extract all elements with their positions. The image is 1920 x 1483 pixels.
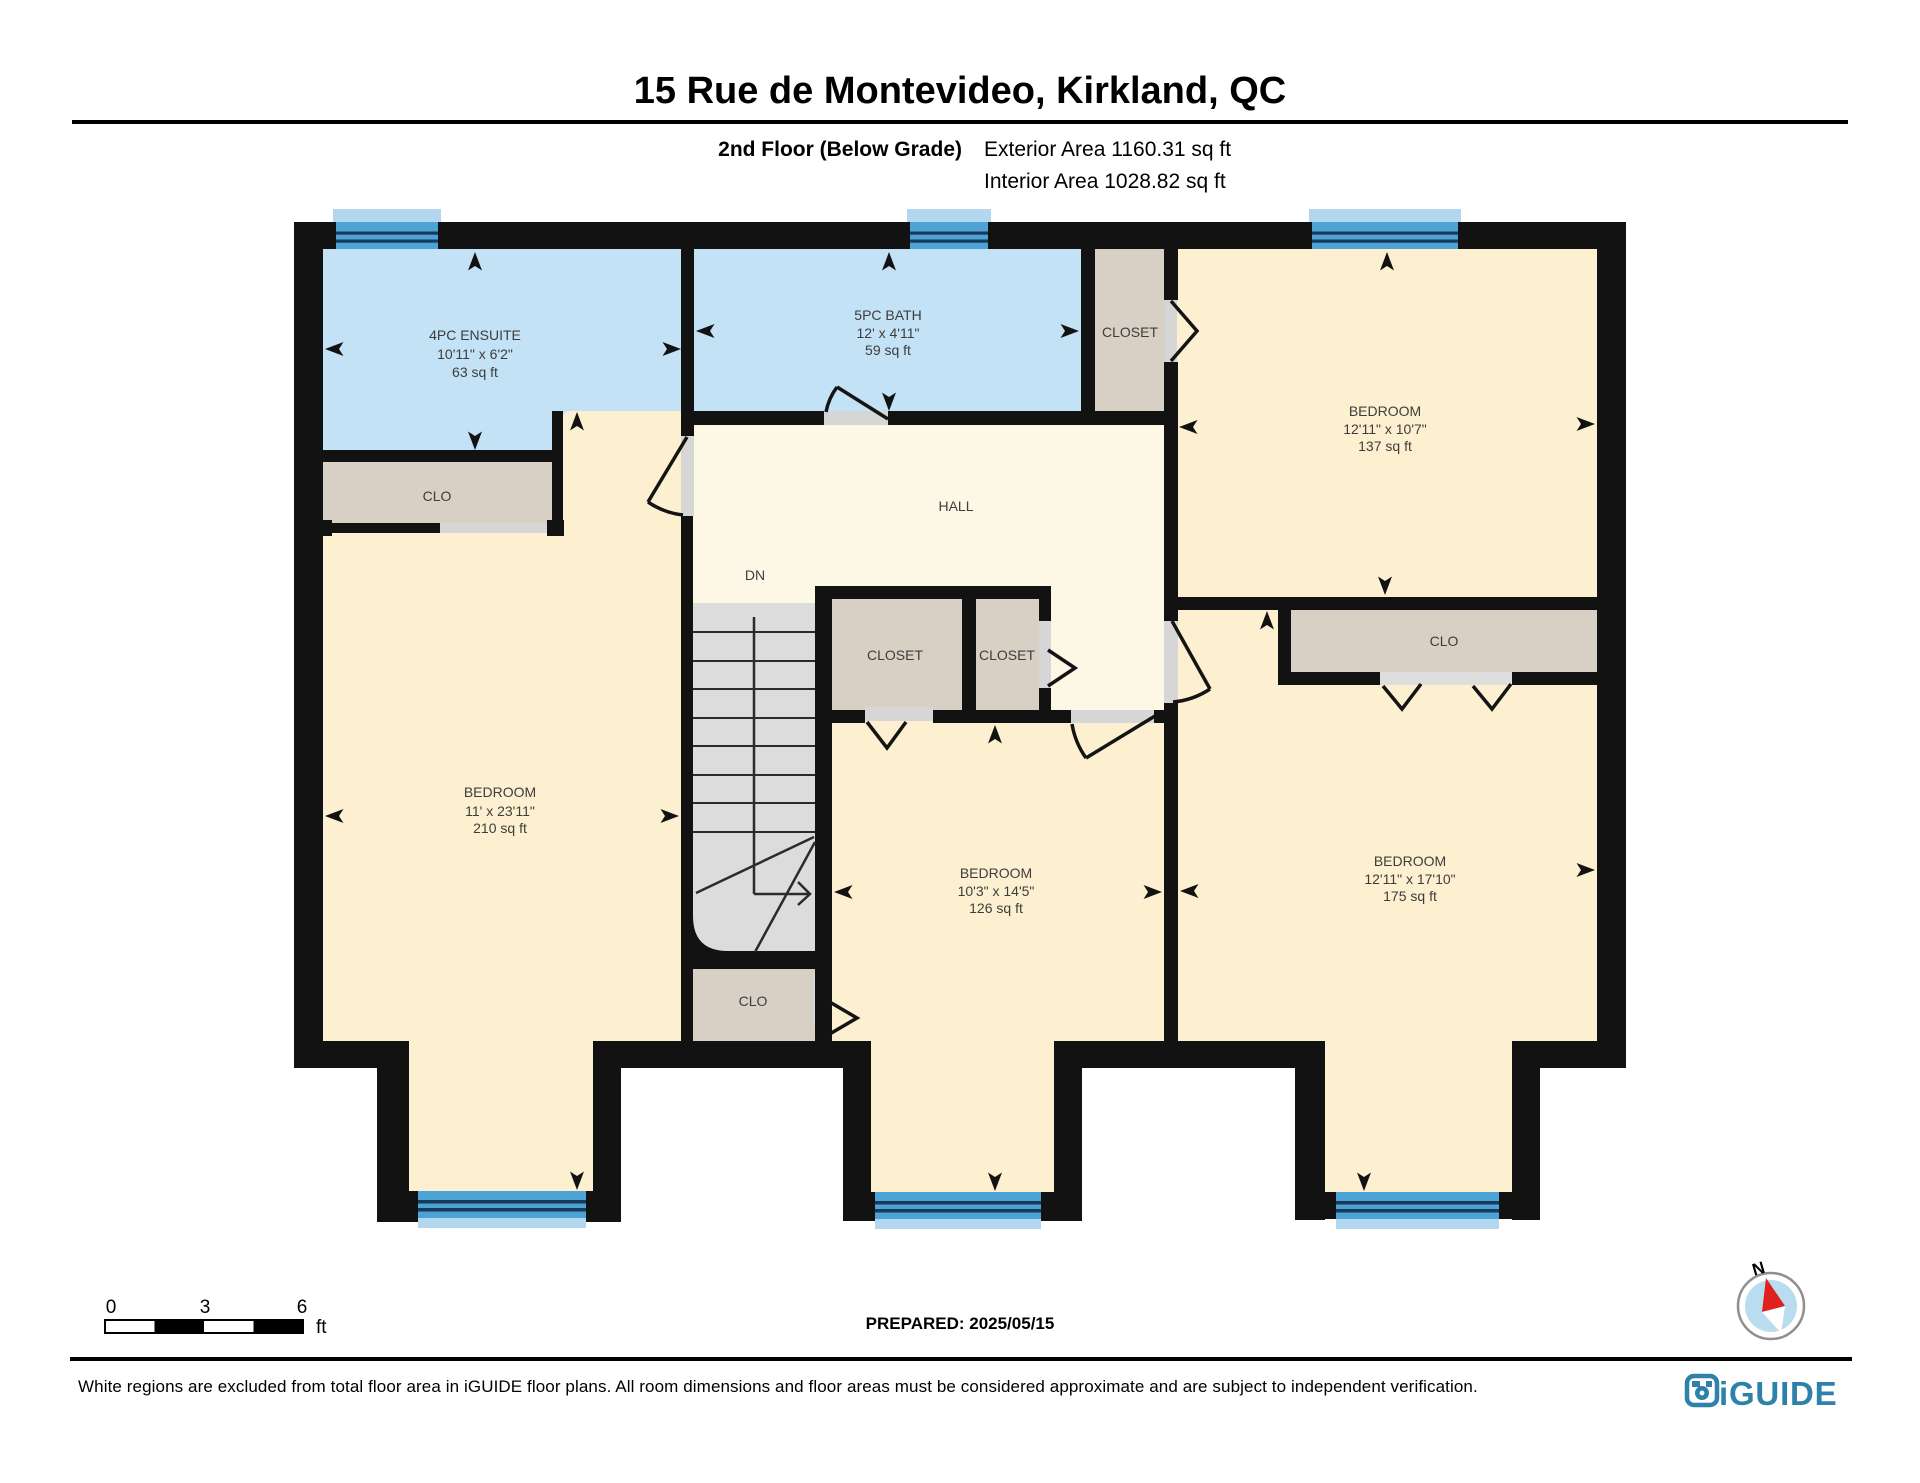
svg-text:BEDROOM: BEDROOM [1349,403,1421,419]
svg-text:BEDROOM: BEDROOM [960,865,1032,881]
svg-text:15 Rue de Montevideo, Kirkland: 15 Rue de Montevideo, Kirkland, QC [634,70,1286,112]
svg-text:ft: ft [316,1317,327,1338]
svg-text:CLOSET: CLOSET [867,647,923,663]
svg-text:PREPARED: 2025/05/15: PREPARED: 2025/05/15 [866,1314,1055,1333]
svg-text:BEDROOM: BEDROOM [1374,853,1446,869]
svg-text:CLOSET: CLOSET [1102,324,1158,340]
svg-text:4PC ENSUITE: 4PC ENSUITE [429,327,521,343]
svg-text:126 sq ft: 126 sq ft [969,900,1023,916]
svg-text:12' x 4'11": 12' x 4'11" [857,325,920,341]
svg-text:BEDROOM: BEDROOM [464,784,536,800]
svg-text:10'3" x 14'5": 10'3" x 14'5" [958,883,1035,899]
svg-text:CLO: CLO [1430,633,1459,649]
svg-text:Exterior Area 1160.31 sq ft: Exterior Area 1160.31 sq ft [984,138,1231,161]
svg-text:12'11" x 17'10": 12'11" x 17'10" [1364,871,1455,887]
svg-text:11' x 23'11": 11' x 23'11" [465,803,535,819]
svg-text:HALL: HALL [938,498,973,514]
svg-text:5PC BATH: 5PC BATH [854,307,921,323]
svg-text:175 sq ft: 175 sq ft [1383,888,1437,904]
svg-text:iGUIDE: iGUIDE [1719,1375,1837,1412]
svg-text:0: 0 [106,1297,117,1318]
svg-text:DN: DN [745,567,765,583]
svg-text:137 sq ft: 137 sq ft [1358,438,1412,454]
svg-text:CLO: CLO [423,488,452,504]
svg-text:12'11" x 10'7": 12'11" x 10'7" [1343,421,1427,437]
svg-text:6: 6 [297,1297,308,1318]
svg-text:CLOSET: CLOSET [979,647,1035,663]
svg-text:10'11" x 6'2": 10'11" x 6'2" [437,346,513,362]
svg-text:2nd Floor (Below Grade): 2nd Floor (Below Grade) [718,138,962,161]
svg-text:White regions are excluded fro: White regions are excluded from total fl… [78,1377,1478,1396]
svg-text:210 sq ft: 210 sq ft [473,820,527,836]
svg-text:63 sq ft: 63 sq ft [452,364,498,380]
svg-text:CLO: CLO [739,993,768,1009]
svg-text:59 sq ft: 59 sq ft [865,342,911,358]
svg-text:Interior Area 1028.82 sq ft: Interior Area 1028.82 sq ft [984,170,1226,193]
svg-text:3: 3 [200,1297,211,1318]
